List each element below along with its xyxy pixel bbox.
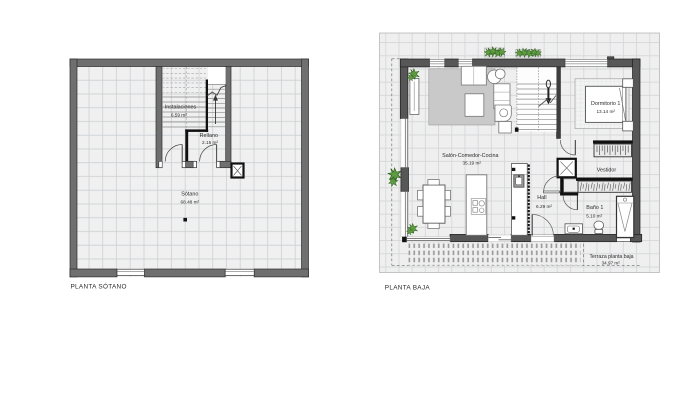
svg-text:Vestidor: Vestidor	[597, 168, 617, 174]
svg-text:Salón-Comedor-Cocina: Salón-Comedor-Cocina	[442, 153, 498, 159]
svg-text:PLANTA BAJA: PLANTA BAJA	[385, 285, 431, 292]
svg-text:Dormitorio 1: Dormitorio 1	[591, 101, 620, 107]
svg-text:5.10 m²: 5.10 m²	[586, 214, 602, 219]
svg-text:Terraza planta baja: Terraza planta baja	[589, 254, 633, 260]
svg-text:35.19 m²: 35.19 m²	[462, 160, 481, 165]
svg-text:6.29 m²: 6.29 m²	[536, 204, 552, 209]
svg-text:2.15 m²: 2.15 m²	[202, 140, 218, 145]
svg-text:Rellano: Rellano	[200, 133, 218, 139]
svg-text:Sótano: Sótano	[181, 192, 198, 198]
svg-text:34.97 m²: 34.97 m²	[602, 260, 621, 265]
svg-text:13.14 m²: 13.14 m²	[596, 109, 615, 114]
svg-text:Baño 1: Baño 1	[586, 205, 603, 211]
svg-text:PLANTA SÓTANO: PLANTA SÓTANO	[71, 282, 127, 291]
svg-text:68.48 m²: 68.48 m²	[181, 199, 200, 204]
svg-text:Instalaciones: Instalaciones	[165, 105, 197, 111]
svg-text:Hall: Hall	[537, 195, 546, 201]
svg-text:6.59 m²: 6.59 m²	[171, 112, 187, 117]
